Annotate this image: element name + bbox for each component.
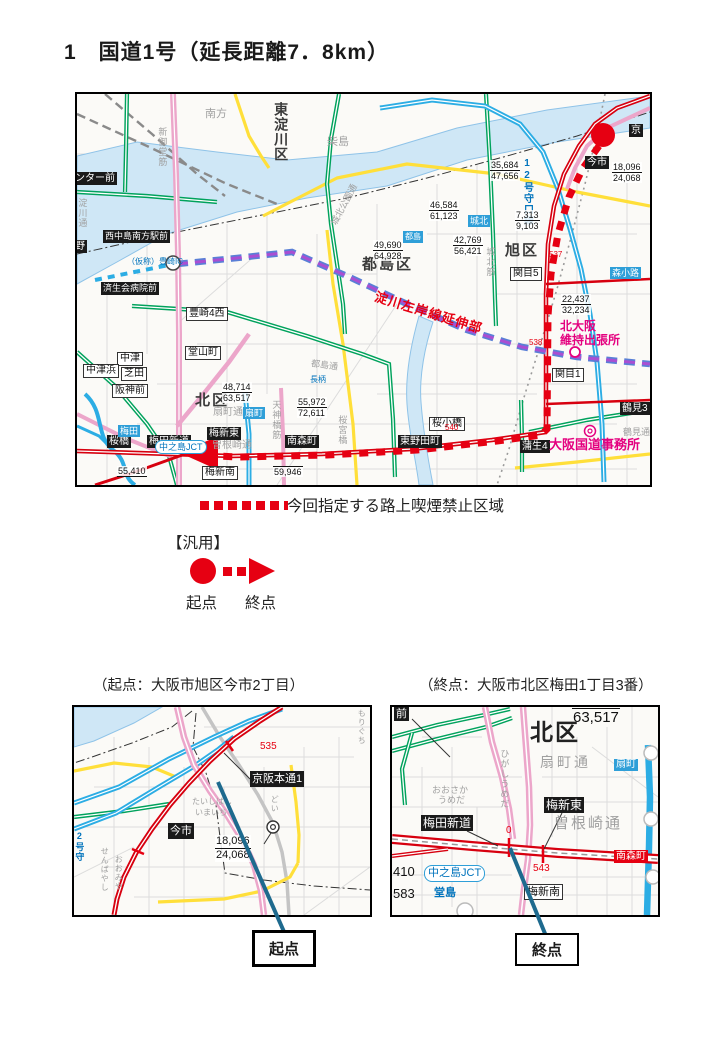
area-kana: おおさか bbox=[432, 785, 468, 795]
area-kana: せんばやし bbox=[100, 847, 109, 892]
intersection-label: 東野田町 bbox=[398, 435, 442, 448]
route-figure: 583 bbox=[393, 887, 415, 902]
count-bottom: 47,656 bbox=[490, 171, 520, 181]
count-bottom: 63,517 bbox=[572, 709, 620, 726]
count-top: 18,096 bbox=[612, 162, 642, 173]
count-bottom: 56,421 bbox=[453, 246, 483, 256]
office-label-line1: 北大阪 bbox=[560, 319, 596, 333]
office-label-line2: 維持出張所 bbox=[560, 333, 620, 347]
intersection-label: 梅新東 bbox=[207, 427, 241, 440]
route-number: 537 bbox=[549, 250, 562, 259]
area-kana: たいしばし bbox=[192, 797, 232, 806]
count-bottom: 32,234 bbox=[561, 305, 591, 315]
bridge-label: 長柄 bbox=[310, 375, 326, 384]
route-number: 0 bbox=[506, 825, 512, 837]
road-name: 扇町通 bbox=[540, 754, 591, 770]
area-kana: うめだ bbox=[438, 795, 465, 805]
road-name: 曽根崎通 bbox=[554, 815, 622, 832]
traffic-count: 22,43732,234 bbox=[561, 294, 591, 315]
traffic-count: 55,97272,611 bbox=[297, 397, 327, 418]
route-figure: 410 bbox=[393, 865, 415, 880]
stop-label: 前 bbox=[394, 707, 409, 721]
road-name: 鶴見通 bbox=[623, 427, 650, 437]
inset-start-labels: 京阪本通1 今市 535 18,09624,068 たいしばし いまいち どい … bbox=[74, 707, 370, 915]
intersection-label: 今市 bbox=[585, 156, 609, 169]
traffic-count: 48,71463,517 bbox=[222, 382, 252, 403]
intersection-label: 鶴見3 bbox=[620, 402, 650, 415]
road-name: 城北筋 bbox=[485, 247, 495, 277]
intersection-label: 梅新東 bbox=[544, 797, 584, 813]
end-callout-box: 終点 bbox=[515, 933, 579, 966]
traffic-count: 42,76956,421 bbox=[453, 235, 483, 256]
planned-line-name: 淀川左岸線延伸部 bbox=[373, 290, 484, 337]
station-label: 城北 bbox=[468, 215, 490, 227]
count-bottom: 24,068 bbox=[612, 173, 642, 183]
traffic-count: 7,3139,103 bbox=[515, 210, 540, 231]
intersection-label: 梅新南 bbox=[202, 466, 238, 480]
count-top: 48,714 bbox=[222, 382, 252, 393]
traffic-count: 35,68447,656 bbox=[490, 160, 520, 181]
traffic-count: 48,71463,517 bbox=[572, 705, 620, 726]
intersection-label: 中津 bbox=[117, 352, 143, 366]
page-title: 1 国道1号（延長距離7．8km） bbox=[64, 36, 389, 66]
road-name: 曽根崎通 bbox=[212, 440, 252, 452]
legend-generic-header: 【汎用】 bbox=[167, 531, 229, 553]
count-top: 22,437 bbox=[561, 294, 591, 305]
count-top: 46,584 bbox=[429, 200, 459, 211]
legend-start-dot bbox=[190, 558, 216, 584]
jct-label: 中之島JCT bbox=[155, 440, 207, 454]
road-name: 天神橋筋 bbox=[271, 400, 281, 440]
route-number: 535 bbox=[260, 741, 277, 753]
count-top: 55,972 bbox=[297, 397, 327, 408]
count-bottom: 61,123 bbox=[429, 211, 459, 221]
intersection-label: 梅田新道 bbox=[421, 815, 473, 831]
area-kana: いまいち bbox=[195, 808, 227, 817]
intersection-label: 関目5 bbox=[510, 267, 542, 281]
road-name: 城北公園通 bbox=[329, 182, 359, 227]
area-label: 南方 bbox=[205, 108, 227, 121]
traffic-count: 18,09624,068 bbox=[215, 835, 251, 862]
traffic-count: 59,946 bbox=[273, 466, 303, 477]
area-label: 堂島 bbox=[434, 887, 456, 900]
station-label: 森小路 bbox=[610, 267, 641, 279]
intersection-label: 豊崎4西 bbox=[186, 307, 228, 321]
count-bottom: 9,103 bbox=[515, 221, 540, 231]
intersection-label: 阪神前 bbox=[112, 384, 148, 398]
stop-label: ンター前 bbox=[75, 172, 117, 185]
ic-label: （仮称）豊崎IC bbox=[127, 257, 183, 266]
start-callout-box: 起点 bbox=[252, 930, 316, 967]
count-top: 49,690 bbox=[373, 240, 403, 251]
area-label: 柴島 bbox=[327, 136, 349, 149]
area-kana: おおみや bbox=[114, 855, 123, 891]
route-number: 543 bbox=[533, 863, 550, 875]
intersection-label: 京阪本通1 bbox=[250, 771, 304, 787]
station-label: 梅田 bbox=[118, 425, 140, 437]
count-top: 18,096 bbox=[215, 835, 251, 849]
intersection-label: 梅新南 bbox=[524, 884, 563, 900]
legend-designated-dashes bbox=[200, 501, 288, 510]
intersection-label: 芝田 bbox=[121, 367, 147, 381]
road-name: 都島通 bbox=[310, 358, 338, 372]
intersection-label: 関目1 bbox=[552, 368, 584, 382]
legend-end-arrow bbox=[249, 558, 275, 584]
area-kana: もりぐち bbox=[357, 709, 366, 745]
count-top: 42,769 bbox=[453, 235, 483, 246]
area-kana: ひがしうめだ bbox=[499, 749, 509, 809]
legend-designated-label: 今回指定する路上喫煙禁止区域 bbox=[287, 494, 504, 516]
count-top: 7,313 bbox=[515, 210, 540, 221]
stop-label: 西中島南方駅前 bbox=[103, 230, 170, 243]
stop-label: 京 bbox=[629, 124, 643, 137]
intersection-label: 南森町 bbox=[285, 435, 319, 448]
count-bottom: 72,611 bbox=[297, 408, 327, 418]
main-map: 東淀川区 都島区 旭区 北区 南方 柴島 新御堂筋 淀川通 城北筋 城北公園通 … bbox=[75, 92, 652, 487]
inset-start-caption: （起点：大阪市旭区今市2丁目） bbox=[93, 674, 304, 695]
traffic-count: 55,410 bbox=[117, 466, 147, 477]
count-top: 55,410 bbox=[117, 466, 147, 477]
station-label: 扇町 bbox=[243, 407, 265, 419]
area-kana: どい bbox=[270, 795, 279, 813]
intersection-label: 堂山町 bbox=[185, 346, 221, 360]
road-name: 淀川通 bbox=[77, 198, 87, 228]
station-label: 都島 bbox=[403, 231, 423, 243]
legend-start-label: 起点 bbox=[186, 591, 217, 613]
jct-label: 中之島JCT bbox=[424, 865, 485, 882]
count-top: 35,684 bbox=[490, 160, 520, 171]
station-label: 扇町 bbox=[614, 759, 638, 771]
intersection-label: 今市 bbox=[168, 823, 194, 839]
inset-end-labels: 前 北区 48,71463,517 扇町通 扇町 ひがしうめだ おおさか うめだ… bbox=[392, 707, 658, 915]
count-bottom: 64,928 bbox=[373, 251, 403, 261]
route-number: 540 bbox=[445, 423, 458, 432]
stop-label: 済生会病院前 bbox=[101, 282, 159, 295]
road-name: 桜宮橋 bbox=[337, 415, 347, 445]
traffic-count: 49,69064,928 bbox=[373, 240, 403, 261]
traffic-count: 46,58461,123 bbox=[429, 200, 459, 221]
count-bottom: 59,946 bbox=[273, 466, 303, 477]
office-label: 北大阪維持出張所 bbox=[560, 320, 620, 348]
office-label: 大阪国道事務所 bbox=[549, 438, 640, 453]
road-name: 扇町通 bbox=[213, 407, 243, 419]
inset-end-caption: （終点：大阪市北区梅田1丁目3番） bbox=[419, 674, 653, 695]
inset-map-start: 京阪本通1 今市 535 18,09624,068 たいしばし いまいち どい … bbox=[72, 705, 372, 917]
expressway-name: 2号守 bbox=[74, 831, 84, 862]
ward-label: 旭区 bbox=[505, 242, 539, 259]
document-page: 1 国道1号（延長距離7．8km） bbox=[0, 0, 720, 1040]
ward-label: 東淀川区 bbox=[273, 102, 289, 162]
main-map-labels: 東淀川区 都島区 旭区 北区 南方 柴島 新御堂筋 淀川通 城北筋 城北公園通 … bbox=[77, 94, 650, 485]
traffic-count: 18,09624,068 bbox=[612, 162, 642, 183]
inset-map-end: 前 北区 48,71463,517 扇町通 扇町 ひがしうめだ おおさか うめだ… bbox=[390, 705, 660, 917]
stop-label: 野 bbox=[75, 240, 87, 253]
intersection-label: 蒲生4 bbox=[520, 440, 550, 453]
road-name: 新御堂筋 bbox=[157, 127, 167, 167]
count-bottom: 24,068 bbox=[215, 849, 251, 862]
count-bottom: 63,517 bbox=[222, 393, 252, 403]
station-label: 南森町 bbox=[614, 850, 648, 863]
intersection-label: 中津浜 bbox=[83, 364, 119, 378]
legend-end-label: 終点 bbox=[245, 591, 276, 613]
route-number: 538 bbox=[529, 338, 542, 347]
